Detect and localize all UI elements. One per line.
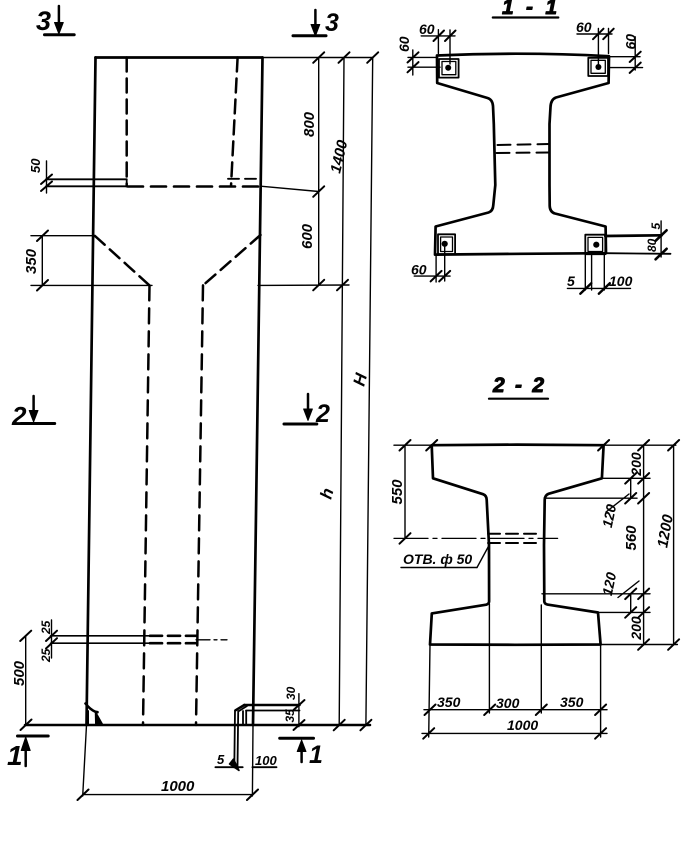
svg-text:800: 800	[301, 111, 318, 137]
svg-text:60: 60	[411, 262, 427, 278]
svg-text:2-2: 2-2	[492, 374, 544, 397]
svg-text:350: 350	[437, 694, 461, 710]
svg-text:1400: 1400	[327, 138, 351, 175]
svg-text:1000: 1000	[507, 717, 538, 733]
svg-text:120: 120	[599, 571, 620, 597]
svg-text:500: 500	[11, 660, 28, 686]
svg-text:h: h	[317, 486, 338, 501]
svg-text:200: 200	[628, 452, 644, 477]
svg-text:60: 60	[396, 36, 412, 52]
svg-text:30: 30	[284, 686, 298, 700]
svg-text:80: 80	[645, 238, 659, 252]
svg-text:1: 1	[309, 741, 323, 769]
svg-text:5: 5	[217, 752, 225, 767]
svg-text:60: 60	[576, 19, 592, 35]
svg-text:5: 5	[567, 273, 575, 289]
svg-text:300: 300	[496, 695, 520, 711]
svg-text:560: 560	[623, 525, 640, 551]
svg-text:2: 2	[11, 401, 27, 431]
svg-text:3: 3	[325, 9, 339, 37]
svg-text:100: 100	[609, 273, 633, 289]
svg-text:50: 50	[28, 158, 43, 173]
svg-text:60: 60	[419, 21, 435, 37]
svg-text:35: 35	[283, 709, 297, 723]
svg-text:60: 60	[623, 34, 639, 50]
svg-text:600: 600	[299, 223, 316, 249]
svg-text:25: 25	[39, 648, 53, 663]
svg-text:H: H	[350, 371, 372, 388]
svg-text:100: 100	[255, 753, 277, 768]
svg-text:1: 1	[7, 740, 23, 771]
svg-text:1-1: 1-1	[502, 0, 557, 19]
svg-text:350: 350	[560, 694, 584, 710]
svg-text:200: 200	[628, 616, 644, 641]
svg-text:5: 5	[649, 223, 663, 230]
svg-text:25: 25	[39, 620, 53, 635]
svg-text:120: 120	[599, 503, 620, 529]
svg-text:3: 3	[36, 6, 51, 36]
svg-text:550: 550	[389, 479, 406, 505]
svg-text:1000: 1000	[161, 778, 195, 795]
svg-text:350: 350	[23, 248, 40, 274]
svg-text:2: 2	[315, 400, 330, 428]
svg-text:ОТВ. ф 50: ОТВ. ф 50	[403, 551, 472, 567]
